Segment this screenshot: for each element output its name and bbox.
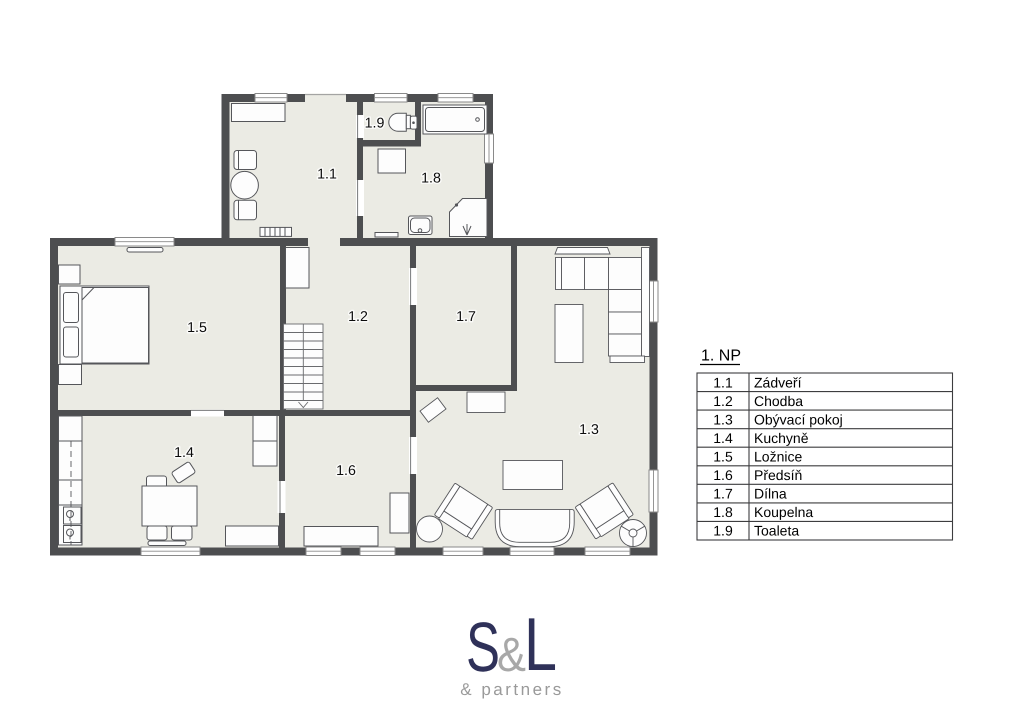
svg-text:1.4: 1.4 xyxy=(174,445,194,461)
svg-text:Toaleta: Toaleta xyxy=(754,523,799,539)
svg-text:1.7: 1.7 xyxy=(456,309,476,325)
svg-text:1.6: 1.6 xyxy=(713,467,733,483)
svg-text:1. NP: 1. NP xyxy=(701,348,741,365)
svg-text:1.1: 1.1 xyxy=(713,374,733,390)
svg-text:1.5: 1.5 xyxy=(713,449,733,465)
svg-text:1.9: 1.9 xyxy=(365,116,385,132)
svg-text:Dílna: Dílna xyxy=(754,486,787,502)
svg-text:1.2: 1.2 xyxy=(713,393,733,409)
svg-text:1.1: 1.1 xyxy=(317,167,337,183)
svg-text:1.7: 1.7 xyxy=(713,486,733,502)
svg-text:1.3: 1.3 xyxy=(579,422,599,438)
svg-text:1.8: 1.8 xyxy=(421,171,441,187)
svg-text:1.3: 1.3 xyxy=(713,411,733,427)
svg-text:1.5: 1.5 xyxy=(187,320,207,336)
svg-text:Koupelna: Koupelna xyxy=(754,504,813,520)
svg-text:&: & xyxy=(497,629,526,682)
svg-text:& partners: & partners xyxy=(460,680,563,699)
svg-text:1.9: 1.9 xyxy=(713,523,733,539)
svg-text:1.4: 1.4 xyxy=(713,430,733,446)
svg-text:Obývací pokoj: Obývací pokoj xyxy=(754,411,843,427)
svg-text:1.2: 1.2 xyxy=(348,309,368,325)
svg-text:Ložnice: Ložnice xyxy=(754,449,802,465)
svg-text:Chodba: Chodba xyxy=(754,393,803,409)
svg-text:Kuchyně: Kuchyně xyxy=(754,430,809,446)
svg-text:Předsíň: Předsíň xyxy=(754,467,802,483)
svg-text:Zádveří: Zádveří xyxy=(754,374,802,390)
svg-text:1.6: 1.6 xyxy=(336,463,356,479)
svg-text:1.8: 1.8 xyxy=(713,504,733,520)
svg-text:L: L xyxy=(524,602,557,686)
svg-text:S: S xyxy=(466,608,500,686)
